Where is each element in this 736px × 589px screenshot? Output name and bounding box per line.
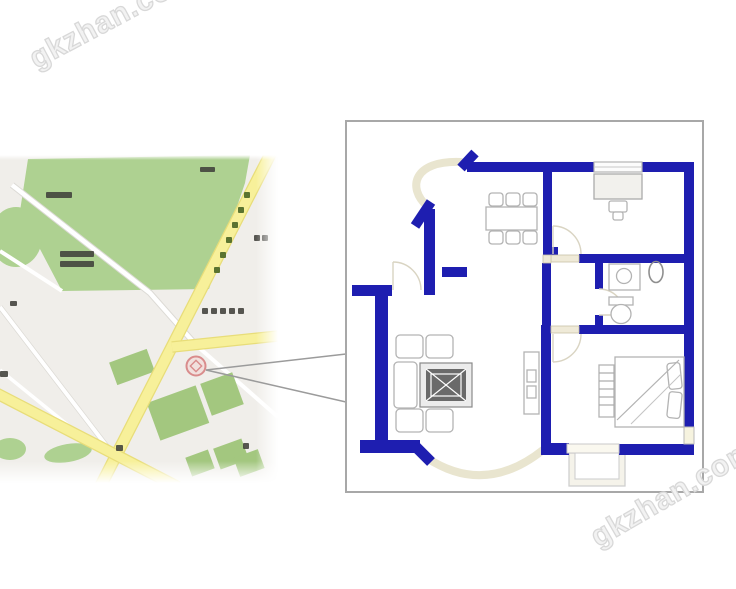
bedside-runner bbox=[599, 365, 614, 417]
tv-cabinet bbox=[524, 352, 539, 414]
location-marker-icon bbox=[187, 357, 206, 376]
rug bbox=[420, 363, 472, 407]
bathroom-fixtures bbox=[609, 262, 663, 324]
floor-plan bbox=[347, 122, 702, 491]
dining-set bbox=[486, 193, 537, 244]
bedroom-door-arc bbox=[553, 334, 581, 362]
study-desk bbox=[594, 174, 642, 220]
listing-image: gkzhan.com gkzhan.com bbox=[0, 0, 736, 589]
balcony-small bbox=[569, 453, 625, 486]
toilet bbox=[609, 297, 633, 324]
balcony-bottom-arc bbox=[427, 450, 543, 475]
map-fade-bottom bbox=[0, 461, 278, 483]
balcony-top-arc bbox=[416, 162, 461, 206]
sofa-set bbox=[394, 335, 472, 432]
floor-plan-box bbox=[345, 120, 704, 493]
kitchen-door-arc bbox=[393, 262, 421, 290]
bidet bbox=[649, 262, 663, 283]
watermark-top-left: gkzhan.com bbox=[24, 0, 202, 76]
bed bbox=[599, 357, 684, 427]
location-map bbox=[0, 155, 278, 483]
map-fade-right bbox=[256, 155, 278, 483]
map-fade-top bbox=[0, 155, 278, 160]
sink bbox=[609, 264, 640, 290]
